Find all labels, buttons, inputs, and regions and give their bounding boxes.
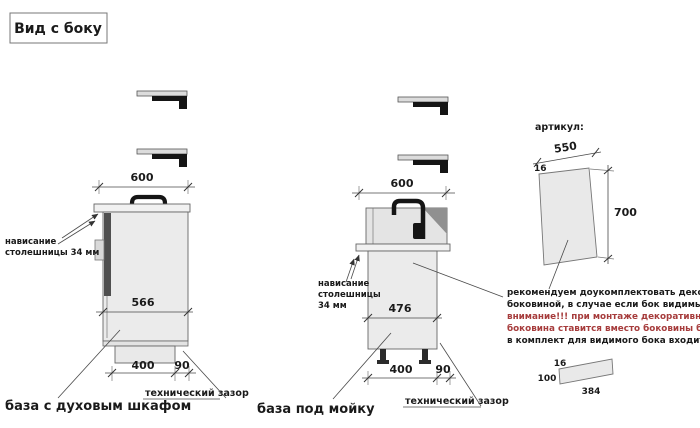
dim-16: 16 bbox=[534, 164, 547, 174]
cabinet-bottom bbox=[103, 341, 188, 346]
sink-icon bbox=[366, 208, 447, 244]
overhang-note: нависание столешницы 34 мм bbox=[5, 214, 99, 258]
dimension-bottom: 400 90 bbox=[362, 363, 456, 385]
note-line-1: рекомендуем доукомплектовать декоративно… bbox=[507, 288, 700, 298]
countertop-bracket-icon bbox=[137, 91, 187, 109]
adjustable-leg-icon bbox=[419, 349, 431, 364]
dimension-top-width: 600 bbox=[352, 177, 455, 200]
dimension-panel-height: 700 bbox=[590, 165, 637, 264]
countertop bbox=[356, 244, 450, 251]
dim-700: 700 bbox=[614, 206, 637, 219]
tech-gap-label: технический зазор bbox=[405, 396, 509, 407]
note-line-4: боковина ставится вместо боковины базы л… bbox=[507, 323, 700, 334]
dim-566: 566 bbox=[132, 296, 155, 309]
countertop-bracket-icon bbox=[137, 149, 187, 167]
note-line-2: боковиной, в случае если бок видимый bbox=[507, 299, 700, 310]
overhang-line2: столешницы bbox=[318, 290, 381, 300]
oven-base-drawing: 600 566 400 90 bbox=[5, 91, 249, 414]
countertop-bracket-icon bbox=[398, 97, 448, 115]
note-line-5: в комплект для видимого бока входит цоко… bbox=[507, 335, 700, 346]
overhang-line2: столешницы 34 мм bbox=[5, 248, 99, 258]
adjustable-leg-icon bbox=[377, 349, 389, 364]
oven-base-label: база с духовым шкафом bbox=[5, 399, 191, 414]
side-view-drawing: Вид с боку 600 bbox=[0, 0, 700, 428]
plinth-dim-100: 100 bbox=[538, 374, 557, 384]
dim-600: 600 bbox=[391, 177, 414, 190]
dim-476: 476 bbox=[389, 302, 412, 315]
dimension-top-width: 600 bbox=[92, 171, 195, 194]
tech-gap-note: технический зазор bbox=[403, 343, 509, 407]
oven-door-edge bbox=[104, 213, 111, 296]
countertop-bracket-icon bbox=[398, 155, 448, 173]
dim-550: 550 bbox=[553, 139, 578, 155]
note-line-3: внимание!!! при монтаже декоративная bbox=[507, 312, 700, 322]
dim-400: 400 bbox=[390, 363, 413, 376]
page-title: Вид с боку bbox=[14, 21, 102, 37]
note-text-block: рекомендуем доукомплектовать декоративно… bbox=[507, 288, 700, 346]
dim-90: 90 bbox=[174, 359, 190, 372]
tech-gap-label: технический зазор bbox=[145, 388, 249, 399]
dim-600: 600 bbox=[131, 171, 154, 184]
overhang-line1: нависание bbox=[5, 237, 57, 247]
title-box: Вид с боку bbox=[10, 13, 107, 43]
overhang-line1: нависание bbox=[318, 279, 370, 289]
side-panel-section: артикул: 550 16 700 рекомендуем доукомпл… bbox=[507, 122, 700, 397]
plinth-dim-384: 384 bbox=[582, 387, 601, 397]
dim-90: 90 bbox=[435, 363, 451, 376]
plinth-dim-16: 16 bbox=[554, 359, 567, 369]
drawing-svg: Вид с боку 600 bbox=[0, 0, 700, 428]
countertop bbox=[94, 204, 190, 212]
sink-base-label: база под мойку bbox=[257, 402, 375, 417]
cabinet-body bbox=[103, 212, 188, 341]
overhang-line3: 34 мм bbox=[318, 301, 347, 311]
plinth-strip bbox=[559, 359, 613, 384]
decorative-side-panel bbox=[539, 168, 597, 265]
dimension-panel-width: 550 bbox=[533, 139, 601, 167]
articul-label: артикул: bbox=[535, 122, 584, 133]
sink-base-drawing: 600 476 bbox=[257, 97, 509, 417]
cabinet-body bbox=[368, 251, 437, 349]
dim-400: 400 bbox=[132, 359, 155, 372]
